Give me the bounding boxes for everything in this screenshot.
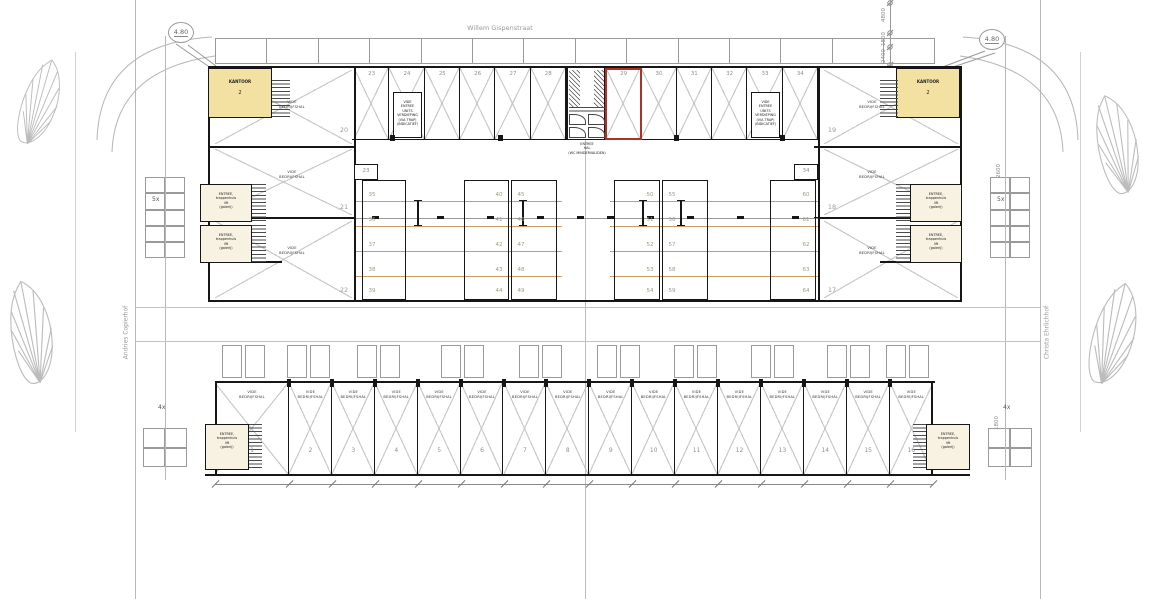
- sidewalk-joint: [883, 39, 884, 63]
- door-mark: [780, 135, 785, 141]
- tree-icon: [12, 55, 68, 148]
- core-landing-hatch: [569, 107, 605, 113]
- sidewalk-joint: [472, 39, 473, 63]
- storage-unit-number: 45: [515, 193, 527, 199]
- datum-dash: [737, 216, 744, 219]
- hall-number-left[interactable]: 20: [338, 126, 350, 134]
- tree-icon: [1083, 279, 1144, 388]
- storage-unit-number: 40: [493, 193, 505, 199]
- storage-unit-number: 59: [666, 289, 678, 295]
- sidewalk-joint: [626, 39, 627, 63]
- storage-unit-number: 53: [644, 268, 656, 274]
- street-name-right: Christa Ehrlichhof: [1044, 293, 1051, 373]
- wall-line: [75, 52, 76, 432]
- door-mark: [674, 135, 679, 141]
- wall-line: [356, 218, 818, 219]
- parking-stall: [245, 345, 265, 378]
- door-mark: [416, 379, 420, 387]
- unit-cell-28[interactable]: [531, 68, 566, 139]
- storage-unit-number: 43: [493, 268, 505, 274]
- tree-icon: [1, 277, 62, 386]
- corner-unit-label: 34: [794, 169, 818, 175]
- parking-stall-right: [990, 242, 1010, 258]
- column-mark: [414, 225, 422, 226]
- wall-line: [814, 146, 962, 148]
- unit-number: 24: [389, 72, 424, 78]
- parking-stall: [774, 345, 794, 378]
- street-name-top: Willem Gispenstraat: [420, 24, 580, 32]
- hall-number-right[interactable]: 18: [826, 203, 838, 211]
- vide-bedrijfshal-label: VIDE BEDRIJFSHAL: [589, 390, 632, 400]
- parking-stall-left: [145, 242, 165, 258]
- parking-count-right: 5x: [997, 196, 1004, 203]
- parking-stall: [697, 345, 717, 378]
- storage-unit-number: 39: [366, 289, 378, 295]
- office-stair-hatch: [880, 80, 898, 118]
- vide-bedrijfshal-label: VIDE BEDRIJFSHAL: [272, 246, 312, 258]
- corner-unit-label: 23: [354, 169, 378, 175]
- office-room-left: KANTOOR 2: [208, 68, 272, 118]
- datum-dash: [607, 216, 614, 219]
- wall-line: [215, 381, 935, 383]
- vide-bedrijfshal-label: VIDE BEDRIJFSHAL: [852, 170, 892, 182]
- parking-stall: [674, 345, 694, 378]
- vide-bedrijfshal-label: VIDE BEDRIJFSHAL: [632, 390, 675, 400]
- entree-room-label: ENTREE, trappenhuis lift (galerij): [910, 233, 962, 259]
- highlighted-unit-outline[interactable]: [605, 68, 643, 140]
- vide-bedrijfshal-label: VIDE BEDRIJFSHAL: [504, 390, 547, 400]
- storage-unit-number: 62: [800, 243, 812, 249]
- parking-stall: [827, 345, 847, 378]
- parking-stall: [357, 345, 377, 378]
- parking-stall-left: [145, 177, 165, 193]
- sidewalk-joint: [266, 39, 267, 63]
- wall-line: [135, 0, 136, 599]
- sidewalk-joint: [678, 39, 679, 63]
- datum-dash: [577, 216, 584, 219]
- parking-stall: [597, 345, 617, 378]
- storage-unit-number: 58: [666, 268, 678, 274]
- wall-line: [165, 36, 166, 480]
- vide-bedrijfshal-label: VIDE BEDRIJFSHAL: [215, 390, 289, 400]
- wall-line: [354, 66, 356, 302]
- spot-height-marker-left: 4.80: [168, 22, 194, 43]
- unit-number: 25: [425, 72, 460, 78]
- door-mark: [630, 379, 634, 387]
- wall-line: [1080, 52, 1081, 432]
- unit-cell-31[interactable]: [677, 68, 712, 139]
- parking-stall-right: [990, 210, 1010, 226]
- core-stair-hatch: [569, 70, 580, 108]
- storage-unit-number: 41: [493, 218, 505, 224]
- office-number: 2: [209, 90, 271, 96]
- vide-bedrijfshal-label: VIDE BEDRIJFSHAL: [852, 246, 892, 258]
- unit-cell-30[interactable]: [641, 68, 676, 139]
- vide-bedrijfshal-label: VIDE BEDRIJFSHAL: [289, 390, 332, 400]
- dim-label-4800: 4800: [881, 3, 887, 27]
- core-note-text: ENTREE HAL (WC MINDERVALIDEN): [565, 142, 609, 156]
- entree-stair-hatch: [252, 225, 266, 263]
- storage-unit-number: 64: [800, 289, 812, 295]
- core-stair-hatch: [594, 70, 604, 108]
- parking-count-left: 5x: [152, 196, 159, 203]
- storage-unit-number: 49: [515, 289, 527, 295]
- unit-cell-25[interactable]: [425, 68, 460, 139]
- unit-cell-32[interactable]: [712, 68, 747, 139]
- floor-plan: Willem Gispenstraat Andries Copierhof Ch…: [0, 0, 1175, 599]
- parking-stall-right: [1010, 177, 1030, 193]
- door-mark: [759, 379, 763, 387]
- parking-stall-right: [1010, 193, 1030, 209]
- wall-line: [135, 341, 1040, 342]
- storage-unit-number: 48: [515, 268, 527, 274]
- parking-stall-left: [165, 242, 185, 258]
- parking-stall: [287, 345, 307, 378]
- wall-line: [1040, 0, 1041, 599]
- parking-stall-right: [990, 177, 1010, 193]
- office-label: KANTOOR: [209, 79, 271, 84]
- column-mark: [677, 225, 685, 226]
- unit-number: 27: [495, 72, 530, 78]
- parking-count-bottom-left: 4x: [158, 404, 165, 411]
- office-label: KANTOOR: [897, 79, 959, 84]
- parking-stall-bottom-left: [143, 428, 165, 448]
- office-stair-hatch: [272, 80, 290, 118]
- wall-line: [352, 139, 820, 140]
- vide-bedrijfshal-label: VIDE BEDRIJFSHAL: [332, 390, 375, 400]
- storage-unit-number: 47: [515, 243, 527, 249]
- door-mark: [673, 379, 677, 387]
- parking-stall: [464, 345, 484, 378]
- sidewalk-joint: [421, 39, 422, 63]
- door-mark: [373, 379, 377, 387]
- parking-stall: [886, 345, 906, 378]
- storage-unit-number: 42: [493, 243, 505, 249]
- unit-number: 3: [332, 448, 375, 454]
- door-mark: [802, 379, 806, 387]
- parking-count-bottom-right: 4x: [1003, 404, 1010, 411]
- wall-line: [215, 484, 933, 485]
- door-mark: [459, 379, 463, 387]
- storage-unit-number: 51: [644, 218, 656, 224]
- parking-stall: [310, 345, 330, 378]
- column-mark: [417, 200, 418, 226]
- entree-room-label: ENTREE, trappenhuis lift (galerij): [910, 192, 962, 218]
- storage-unit-number: 54: [644, 289, 656, 295]
- storage-unit-number: 44: [493, 289, 505, 295]
- entree-stair-hatch: [896, 184, 910, 222]
- parking-stall-bottom-right: [988, 428, 1010, 448]
- entree-room-label: ENTREE, trappenhuis lift (galerij): [200, 233, 252, 259]
- sidewalk-joint: [729, 39, 730, 63]
- sidewalk-joint: [318, 39, 319, 63]
- unit-cell-27[interactable]: [495, 68, 530, 139]
- parking-stall: [909, 345, 929, 378]
- unit-number: 13: [761, 448, 804, 454]
- wall-line: [818, 66, 820, 302]
- vide-bedrijfshal-label: VIDE BEDRIJFSHAL: [272, 170, 312, 182]
- datum-dash: [792, 216, 799, 219]
- unit-number: 11: [675, 448, 718, 454]
- parking-stall-bottom-left: [165, 428, 187, 448]
- unit-number: 33: [747, 72, 782, 78]
- datum-dash: [437, 216, 444, 219]
- door-mark: [716, 379, 720, 387]
- wall-line: [208, 300, 962, 302]
- parking-stall: [542, 345, 562, 378]
- spot-height-marker-right: 4.80: [979, 29, 1005, 50]
- datum-dash: [537, 216, 544, 219]
- parking-stall: [620, 345, 640, 378]
- vide-bedrijfshal-label: VIDE BEDRIJFSHAL: [847, 390, 890, 400]
- vide-bedrijfshal-label: VIDE BEDRIJFSHAL: [761, 390, 804, 400]
- unit-number: 1: [215, 448, 289, 454]
- parking-stall-bottom-left: [165, 448, 187, 468]
- unit-cell-34[interactable]: [783, 68, 818, 139]
- unit-number: 16: [890, 448, 933, 454]
- parking-stall-bottom-right: [1010, 448, 1032, 468]
- parking-stall-right: [1010, 242, 1030, 258]
- unit-number: 15: [847, 448, 890, 454]
- unit-number: 12: [718, 448, 761, 454]
- hall-number-right[interactable]: 17: [826, 286, 838, 294]
- unit-note-text: VIDE ENTREE UNITS VERDIEPING (VIA TRAP) …: [393, 100, 422, 136]
- door-mark: [390, 135, 395, 141]
- office-room-right: KANTOOR 2: [896, 68, 960, 118]
- entree-room-label: ENTREE, trappenhuis lift (galerij): [200, 192, 252, 218]
- parking-stall-bottom-right: [988, 448, 1010, 468]
- street-name-left: Andries Copierhof: [123, 293, 130, 373]
- wall-line: [1005, 36, 1006, 480]
- parking-stall-left: [165, 177, 185, 193]
- parking-stall: [380, 345, 400, 378]
- parking-stall-right: [1010, 226, 1030, 242]
- door-mark: [544, 379, 548, 387]
- wall-line: [208, 66, 962, 68]
- unit-number: 2: [289, 448, 332, 454]
- unit-number: 30: [641, 72, 676, 78]
- unit-number: 32: [712, 72, 747, 78]
- unit-cell-23[interactable]: [354, 68, 389, 139]
- storage-unit-number: 46: [515, 218, 527, 224]
- unit-number: 26: [460, 72, 495, 78]
- parking-stall: [519, 345, 539, 378]
- vide-bedrijfshal-label: VIDE BEDRIJFSHAL: [890, 390, 933, 400]
- storage-unit-number: 38: [366, 268, 378, 274]
- column-mark: [519, 225, 527, 226]
- hall-number-right[interactable]: 19: [826, 126, 838, 134]
- parking-stall: [441, 345, 461, 378]
- door-mark: [845, 379, 849, 387]
- parking-stall-bottom-left: [143, 448, 165, 468]
- wall-line: [585, 140, 586, 599]
- parking-stall-right: [1010, 210, 1030, 226]
- unit-number: 7: [504, 448, 547, 454]
- door-mark: [287, 379, 291, 387]
- unit-number: 10: [632, 448, 675, 454]
- unit-number: 31: [677, 72, 712, 78]
- parking-stall-left: [145, 226, 165, 242]
- vide-bedrijfshal-label: VIDE BEDRIJFSHAL: [272, 100, 312, 112]
- datum-dash: [687, 216, 694, 219]
- sidewalk-joint: [832, 39, 833, 63]
- sidewalk-joint: [523, 39, 524, 63]
- door-mark: [498, 135, 503, 141]
- storage-unit-number: 60: [800, 193, 812, 199]
- column-mark: [680, 200, 681, 226]
- unit-number: 4: [375, 448, 418, 454]
- tree-icon: [1085, 91, 1149, 197]
- door-mark: [888, 379, 892, 387]
- unit-number: 28: [531, 72, 566, 78]
- wall-line: [890, 0, 891, 66]
- unit-number: 6: [461, 448, 504, 454]
- wall-line: [135, 307, 1040, 308]
- parking-stall-left: [165, 210, 185, 226]
- entree-stair-hatch: [896, 225, 910, 263]
- storage-unit-number: 37: [366, 243, 378, 249]
- parking-stall: [222, 345, 242, 378]
- wall-line: [208, 146, 356, 148]
- parking-stall-left: [165, 226, 185, 242]
- sidewalk-joint: [780, 39, 781, 63]
- storage-unit-number: 50: [644, 193, 656, 199]
- unit-note-text: VIDE ENTREE UNITS VERDIEPING (VIA TRAP) …: [751, 100, 780, 136]
- storage-unit-number: 35: [366, 193, 378, 199]
- sidewalk-joint: [369, 39, 370, 63]
- storage-unit-number: 61: [800, 218, 812, 224]
- unit-cell-26[interactable]: [460, 68, 495, 139]
- wall-line: [566, 66, 568, 140]
- storage-unit-number: 36: [366, 218, 378, 224]
- vide-bedrijfshal-label: VIDE BEDRIJFSHAL: [546, 390, 589, 400]
- unit-number: 9: [589, 448, 632, 454]
- parking-stall: [751, 345, 771, 378]
- storage-unit-number: 56: [666, 218, 678, 224]
- vide-bedrijfshal-label: VIDE BEDRIJFSHAL: [852, 100, 892, 112]
- unit-number: 14: [804, 448, 847, 454]
- hall-number-left[interactable]: 22: [338, 286, 350, 294]
- vide-bedrijfshal-label: VIDE BEDRIJFSHAL: [675, 390, 718, 400]
- door-mark: [587, 379, 591, 387]
- wall-line: [205, 474, 970, 476]
- unit-number: 8: [546, 448, 589, 454]
- parking-stall-bottom-right: [1010, 428, 1032, 448]
- parking-stall-left: [145, 210, 165, 226]
- storage-unit-number: 52: [644, 243, 656, 249]
- vide-bedrijfshal-label: VIDE BEDRIJFSHAL: [804, 390, 847, 400]
- vide-bedrijfshal-label: VIDE BEDRIJFSHAL: [418, 390, 461, 400]
- unit-number: 5: [418, 448, 461, 454]
- entree-stair-hatch: [252, 184, 266, 222]
- storage-unit-number: 63: [800, 268, 812, 274]
- column-mark: [639, 225, 647, 226]
- vide-bedrijfshal-label: VIDE BEDRIJFSHAL: [461, 390, 504, 400]
- parking-stall: [850, 345, 870, 378]
- sidewalk-joint: [575, 39, 576, 63]
- unit-number: 34: [783, 72, 818, 78]
- door-mark: [330, 379, 334, 387]
- door-mark: [502, 379, 506, 387]
- storage-unit-number: 57: [666, 243, 678, 249]
- office-number: 2: [897, 90, 959, 96]
- unit-number: 23: [354, 72, 389, 78]
- vide-bedrijfshal-label: VIDE BEDRIJFSHAL: [375, 390, 418, 400]
- parking-stall-right: [990, 226, 1010, 242]
- hall-number-left[interactable]: 21: [338, 203, 350, 211]
- parking-stall-left: [165, 193, 185, 209]
- vide-bedrijfshal-label: VIDE BEDRIJFSHAL: [718, 390, 761, 400]
- storage-unit-number: 55: [666, 193, 678, 199]
